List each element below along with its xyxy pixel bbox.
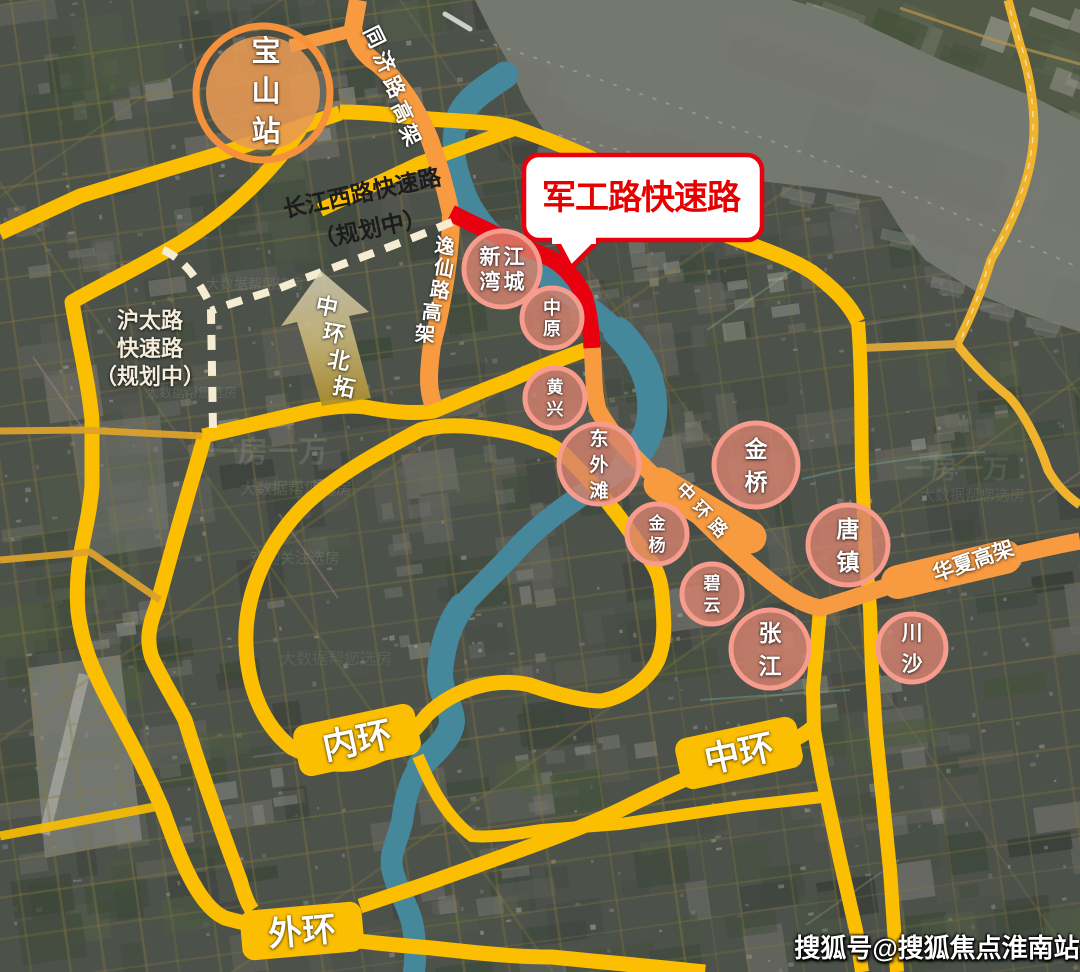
svg-text:中: 中 [314, 292, 340, 321]
svg-text:大数据帮您选房: 大数据帮您选房 [920, 487, 1025, 504]
svg-text:军工路快速路: 军工路快速路 [542, 179, 742, 217]
svg-text:拓: 拓 [331, 373, 357, 402]
svg-text:唐: 唐 [837, 516, 860, 542]
svg-text:站: 站 [251, 115, 280, 148]
svg-text:快速路: 快速路 [117, 336, 184, 361]
svg-text:搜狐号@搜狐焦点淮南站: 搜狐号@搜狐焦点淮南站 [794, 933, 1079, 963]
svg-text:江: 江 [504, 246, 525, 269]
svg-text:逸: 逸 [433, 232, 457, 259]
svg-text:一房一万: 一房一万 [905, 454, 1009, 484]
svg-text:环: 环 [321, 319, 347, 348]
svg-text:山: 山 [251, 75, 280, 108]
svg-text:中: 中 [543, 297, 561, 318]
svg-text:金: 金 [648, 513, 667, 533]
svg-text:外环: 外环 [267, 910, 338, 954]
svg-text:桥: 桥 [745, 469, 769, 495]
svg-text:张: 张 [759, 620, 783, 646]
svg-text:东: 东 [589, 427, 608, 450]
svg-text:高: 高 [421, 299, 443, 325]
svg-text:外: 外 [589, 453, 608, 476]
svg-text:川: 川 [901, 622, 923, 645]
svg-text:黄: 黄 [547, 377, 564, 397]
svg-text:原: 原 [543, 319, 561, 339]
svg-text:江: 江 [759, 653, 782, 679]
svg-text:镇: 镇 [837, 549, 860, 575]
svg-text:沪太路: 沪太路 [117, 308, 184, 333]
svg-text:宝: 宝 [251, 34, 280, 68]
svg-text:兴: 兴 [547, 400, 564, 419]
svg-text:一房一万: 一房一万 [208, 436, 328, 469]
svg-text:仙: 仙 [432, 254, 456, 281]
svg-text:滩: 滩 [589, 479, 608, 502]
svg-text:杨: 杨 [649, 535, 666, 555]
svg-text:沙: 沙 [902, 653, 923, 676]
svg-text:架: 架 [414, 322, 436, 346]
svg-text:湾: 湾 [480, 270, 501, 294]
svg-text:云: 云 [704, 596, 721, 615]
svg-text:新: 新 [480, 245, 501, 269]
svg-text:（规划中）: （规划中） [95, 364, 205, 389]
svg-text:北: 北 [326, 346, 352, 375]
svg-text:城: 城 [504, 270, 525, 294]
svg-text:金: 金 [744, 436, 769, 462]
svg-text:大数据帮您选房: 大数据帮您选房 [280, 650, 392, 668]
svg-text:碧: 碧 [703, 574, 721, 593]
